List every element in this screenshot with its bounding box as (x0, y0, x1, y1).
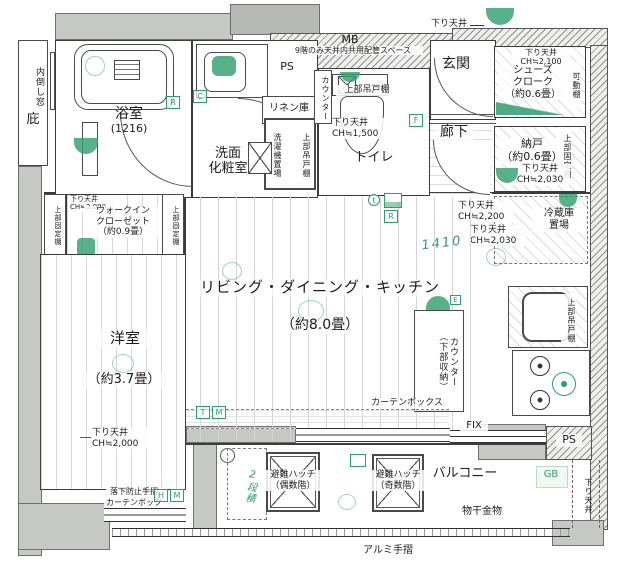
marker-e1: E (450, 295, 461, 305)
stove (512, 350, 590, 416)
linen-label: リネン庫 (263, 103, 315, 115)
stove-burner-1 (530, 356, 550, 376)
bathroom-label: 浴室 (98, 106, 160, 123)
hallway-label: 廊下 (434, 124, 474, 141)
marker-r2: R (384, 210, 398, 223)
toilet-label: トイレ (350, 150, 398, 165)
hand-circle-3 (112, 354, 134, 373)
wic-label: ウォークイン クローゼット （約0.9畳） (84, 206, 162, 238)
marker-t-small: t (368, 194, 380, 206)
wall-bottom-left-block (18, 503, 110, 550)
bedroom-window (104, 508, 186, 522)
wall-top-block (230, 4, 320, 35)
living-size-label: （約8.0畳） (278, 317, 362, 334)
fix-window (450, 430, 558, 443)
living-label: リビング・ダイニング・キッチン (200, 279, 440, 297)
shoes-closet-label: シューズ クローク （約0.6畳） (498, 65, 568, 100)
marker-t1: T (196, 406, 210, 419)
washroom-upper-cabinet-label: 上部吊戸棚 (296, 124, 311, 186)
marker-r1: R (166, 96, 180, 109)
curtain-box-right-label: カーテンボックス (370, 398, 444, 409)
fridge-space-label: 冷蔵庫 置場 (532, 208, 586, 232)
bath-control-panel (114, 60, 140, 80)
ps-top-label: PS (274, 61, 300, 74)
evac-hatch-even-label: 避難ハッチ （偶数階） (264, 470, 322, 491)
gb-label: GB (536, 469, 566, 481)
bedroom-label: 洋室 (96, 330, 154, 348)
vanity-fixture-icon (212, 56, 236, 76)
wall-right (590, 45, 608, 530)
hand-circle-1 (298, 300, 324, 322)
bath-circle-mark (85, 56, 105, 76)
bedroom-down-ceiling-label: 下り天井 CH≒2,000 (92, 428, 148, 449)
bedroom-size-label: （約3.7畳） (84, 372, 164, 387)
balcony-label: バルコニー (428, 466, 502, 481)
balcony-small-box (350, 454, 366, 467)
stove-burner-2 (530, 390, 550, 410)
top-down-ceiling-label: 下り天井 (427, 19, 471, 30)
top-down-ceiling-tick (470, 25, 484, 26)
wall-top-band (55, 13, 233, 40)
marker-m2: M (170, 489, 184, 502)
toilet-upper-cabinet-label: 上部吊戸棚 (336, 85, 398, 96)
ps-bottom-label: PS (556, 434, 582, 447)
toilet-counter-label: カウンター (316, 74, 330, 122)
washroom-label: 洗面 化粧室 (196, 146, 260, 177)
hand-circle-4 (338, 494, 356, 510)
entrance-label: 玄関 (436, 56, 476, 73)
storage-down-ceiling-label: 下り天井 CH≒2,030 (510, 164, 570, 185)
marker-h1: H (154, 489, 168, 502)
toilet-down-ceiling-label: 下り天井 CH≒1,500 (332, 118, 390, 139)
wic-shelf-right-label: 上部固定棚 (166, 197, 180, 255)
storage-label: 納戸 （約0.6畳） (498, 138, 566, 164)
living-window (296, 428, 450, 442)
plant-icon (486, 8, 514, 25)
fix-label: FIX (460, 420, 488, 432)
wall-balcony-top (186, 443, 570, 445)
mb-note-label: 9階のみ天井内共用配管スペース (283, 46, 423, 55)
wall-balcony-left (193, 443, 217, 529)
wall-left-strip (18, 166, 42, 556)
balcony-down-ceiling-label: 下り天井 (578, 468, 593, 524)
marker-c1: C (193, 90, 207, 103)
laundry-fitting-label: 物干金物 (452, 506, 512, 518)
hand-circle-5 (222, 262, 242, 280)
movable-shelf-label: 可動棚 (566, 62, 581, 108)
shoe-shelf-wedge-icon (496, 102, 564, 115)
marker-m1: M (212, 406, 226, 419)
stove-burner-green (552, 372, 576, 396)
bathroom-size-label: (1216) (102, 123, 156, 136)
counter-island-label: カウンター （下部収納） (420, 318, 458, 406)
marker-f1: F (409, 114, 423, 127)
evac-hatch-odd-label: 避難ハッチ （奇数階） (370, 470, 426, 491)
alumi-rail-label: アルミ手摺 (358, 545, 418, 557)
bedroom-pointer-line (80, 437, 91, 438)
kitchen-upper-cabinet-label: 上部吊戸棚 (561, 294, 576, 346)
eaves-label: 庇 (21, 112, 45, 127)
hand-circle-2 (486, 248, 506, 266)
floor-plan: 内倒し窓 庇 浴室 (1216) リネン庫 洗濯機置場 上部吊戸棚 洗面 化粧室… (0, 0, 619, 566)
wic-shelf-left-label: 上部固定棚 (48, 197, 62, 255)
fixture-icon (384, 193, 402, 208)
balcony-rail (112, 528, 570, 537)
